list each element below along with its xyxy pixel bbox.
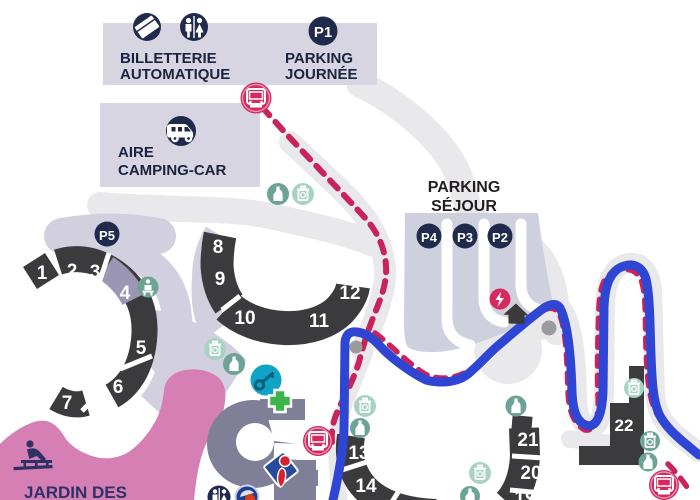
svg-text:AIRE: AIRE [118,144,154,161]
svg-text:21: 21 [517,430,539,451]
svg-text:P4: P4 [421,230,438,245]
svg-text:14: 14 [355,476,377,497]
svg-text:P3: P3 [457,230,473,245]
svg-text:JOURNÉE: JOURNÉE [285,66,358,83]
svg-text:11: 11 [309,311,330,332]
svg-text:P2: P2 [492,230,508,245]
svg-text:JARDIN DES: JARDIN DES [24,483,127,500]
svg-text:6: 6 [113,377,124,398]
svg-text:AUTOMATIQUE: AUTOMATIQUE [120,66,230,83]
svg-text:PARKING: PARKING [428,179,501,196]
svg-text:12: 12 [339,283,360,304]
svg-text:9: 9 [215,269,226,290]
svg-text:P5: P5 [99,228,115,243]
svg-text:CAMPING-CAR: CAMPING-CAR [118,162,226,179]
svg-text:22: 22 [615,416,634,435]
svg-text:4: 4 [120,283,131,304]
svg-text:2: 2 [67,261,78,282]
svg-text:BILLETTERIE: BILLETTERIE [120,50,217,67]
svg-text:5: 5 [136,338,147,359]
svg-text:3: 3 [90,262,101,283]
svg-text:7: 7 [62,393,73,414]
svg-text:10: 10 [234,308,255,329]
svg-text:13: 13 [348,443,369,464]
svg-text:19: 19 [514,488,535,500]
svg-text:PARKING: PARKING [285,50,353,67]
svg-text:SÉJOUR: SÉJOUR [431,196,497,215]
svg-text:1: 1 [37,263,48,284]
svg-text:20: 20 [520,463,541,484]
svg-text:P1: P1 [314,24,332,41]
svg-text:8: 8 [213,237,224,258]
